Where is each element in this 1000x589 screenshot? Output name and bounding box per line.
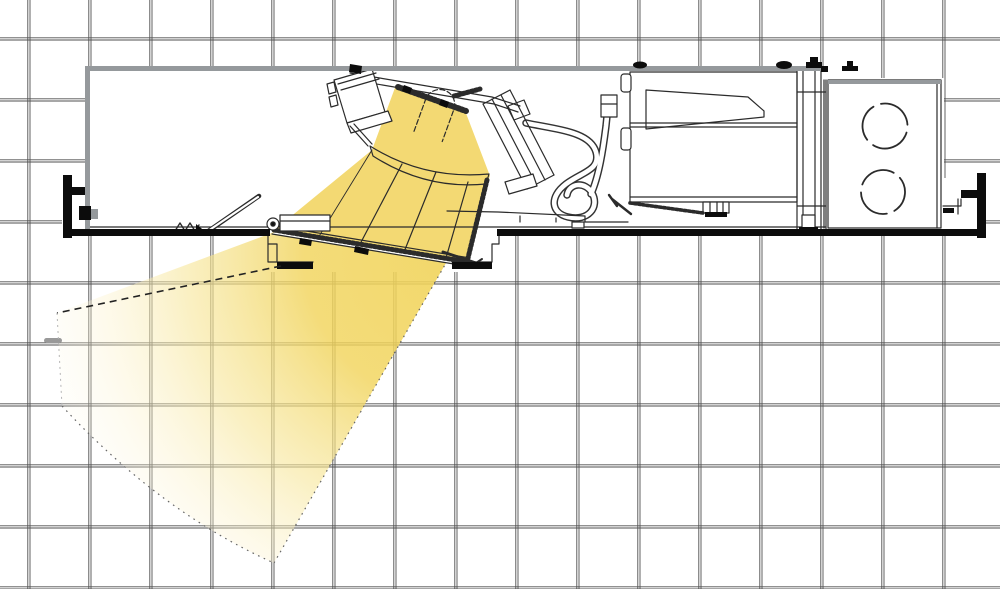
diagram-stage xyxy=(0,0,1000,589)
screw-cap-1 xyxy=(633,62,647,69)
beam-marker-dash xyxy=(44,338,62,343)
end-plate-foot xyxy=(802,215,815,228)
conduit-fitting-box xyxy=(601,95,617,117)
end-plate-foot-base xyxy=(799,227,818,233)
driver-tab-top xyxy=(621,74,631,92)
diagram-canvas xyxy=(0,0,1000,589)
driver-foot-base xyxy=(705,212,727,217)
driver-foot xyxy=(703,202,729,213)
driver-tab-mid xyxy=(621,128,631,150)
trim-ledge-left xyxy=(277,262,313,269)
jbox-bolt-stem xyxy=(847,61,853,67)
lever-plate xyxy=(280,215,330,231)
ceiling-line-left xyxy=(66,229,270,236)
junction-box-fill xyxy=(826,78,944,230)
trim-ledge-right xyxy=(452,262,492,269)
wall-tab xyxy=(91,209,98,219)
ceiling-line-right xyxy=(497,229,986,236)
screw-cap-2 xyxy=(776,61,792,69)
corner-block xyxy=(821,66,828,72)
housing-top-bar xyxy=(85,66,828,71)
driver-box xyxy=(609,72,797,214)
junction-box-top-bar xyxy=(828,80,941,84)
t-bolt-stem xyxy=(810,57,818,64)
